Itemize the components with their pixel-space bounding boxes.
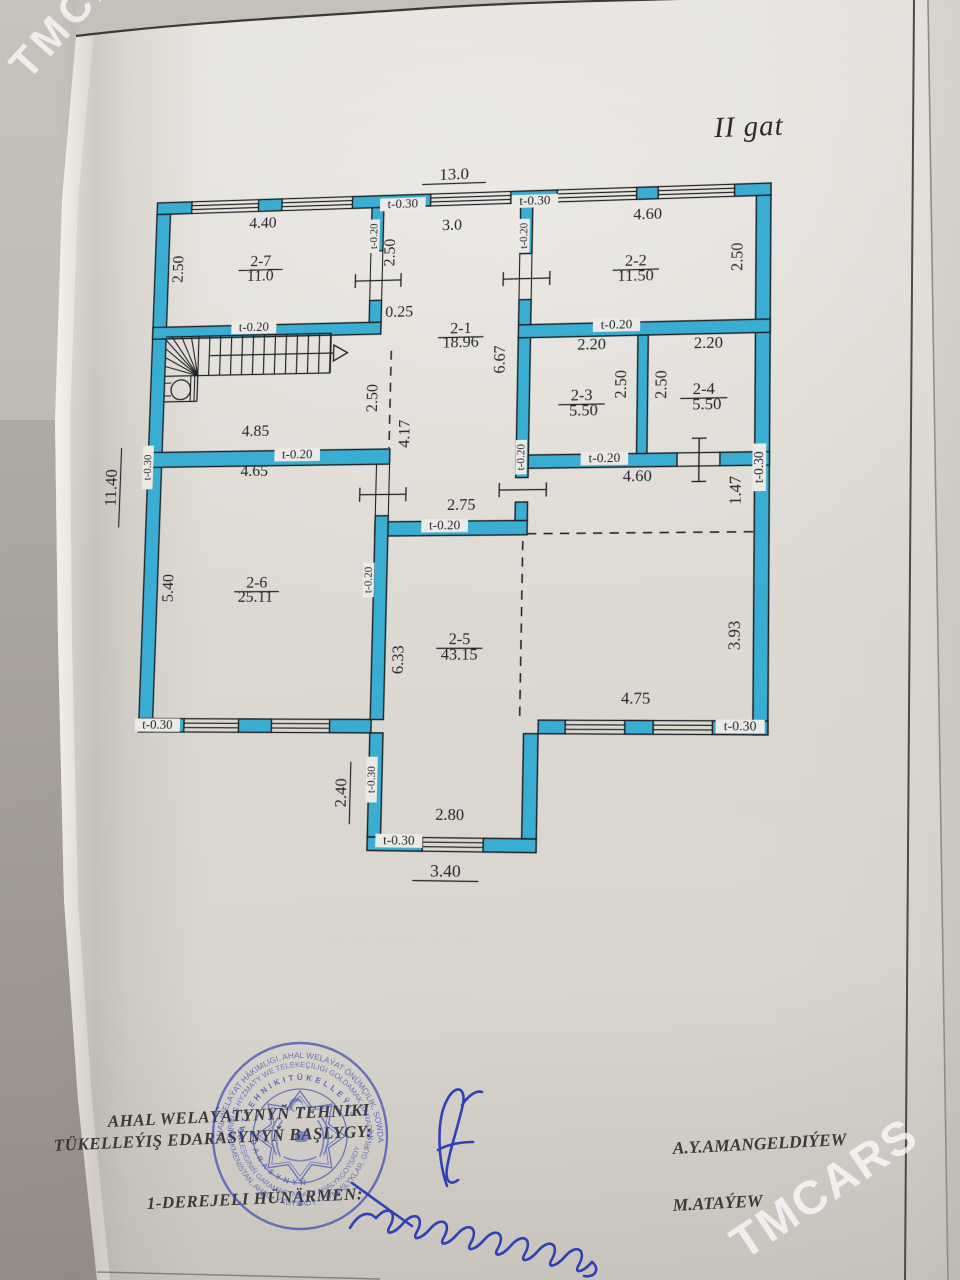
svg-text:A.Y.AMANGELDIÝEW: A.Y.AMANGELDIÝEW: [671, 1129, 848, 1158]
